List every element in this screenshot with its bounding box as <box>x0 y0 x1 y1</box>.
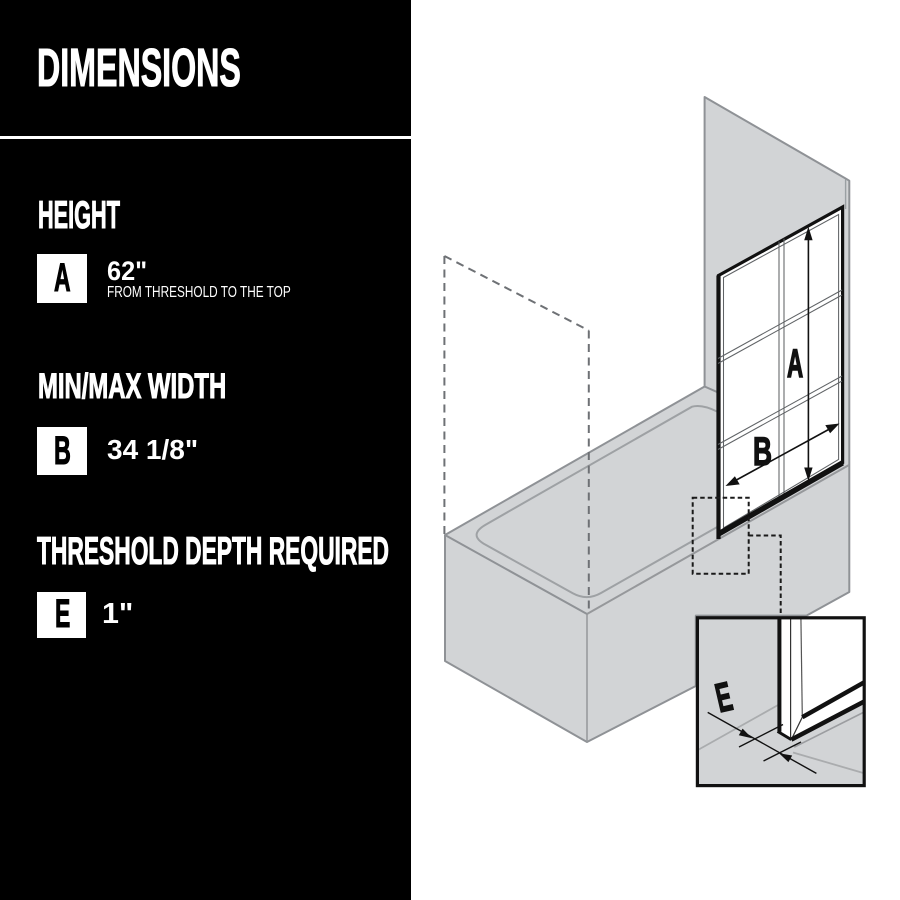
svg-text:A: A <box>787 341 803 385</box>
svg-text:B: B <box>753 429 772 474</box>
